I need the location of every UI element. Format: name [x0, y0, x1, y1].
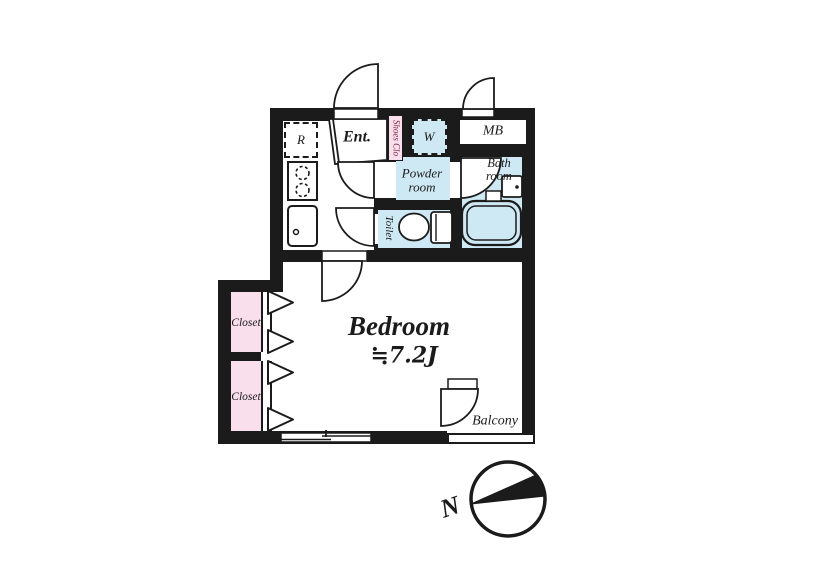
- refrigerator-label: R: [297, 133, 305, 147]
- toilet-label: Toilet: [382, 216, 394, 241]
- toilet-bowl-icon: [399, 212, 452, 243]
- bedroom-door-icon: [322, 261, 362, 301]
- closet-lower-label: Closet: [231, 391, 260, 403]
- bathtub-icon: [462, 201, 521, 245]
- powder-room-door-icon: [338, 162, 374, 198]
- service-threshold: [462, 109, 494, 117]
- shoes-closet-label: Shoes Clo: [391, 120, 400, 156]
- balcony-threshold: [448, 379, 477, 389]
- sliding-window-icon: [281, 430, 371, 442]
- bedroom-threshold: [322, 251, 367, 261]
- service-door-icon: [463, 78, 494, 109]
- balcony-label: Balcony: [472, 415, 518, 430]
- washer-label: W: [424, 130, 435, 144]
- powder-room-label: Powder room: [394, 166, 450, 193]
- bedroom-size-label: ≒7.2J: [370, 344, 437, 367]
- closet-upper-label: Closet: [231, 317, 260, 329]
- entrance-threshold: [334, 109, 378, 119]
- entrance-label: Ent.: [343, 130, 371, 147]
- folding-closet-doors-icon: [268, 291, 293, 431]
- bath-room-label: Bath room: [477, 157, 521, 183]
- bedroom-label: Bedroom: [348, 312, 450, 340]
- entrance-door-icon: [334, 64, 378, 108]
- fixtures-layer: [0, 0, 821, 562]
- floor-plan: R Ent. Shoes Clo W MB Powder room Bath r…: [0, 0, 821, 562]
- meter-box-label: MB: [483, 125, 503, 140]
- kitchen-sink-icon: [288, 206, 317, 246]
- stove-icon: [288, 162, 317, 200]
- compass-rose-icon: [471, 462, 545, 536]
- toilet-door-icon: [336, 208, 374, 246]
